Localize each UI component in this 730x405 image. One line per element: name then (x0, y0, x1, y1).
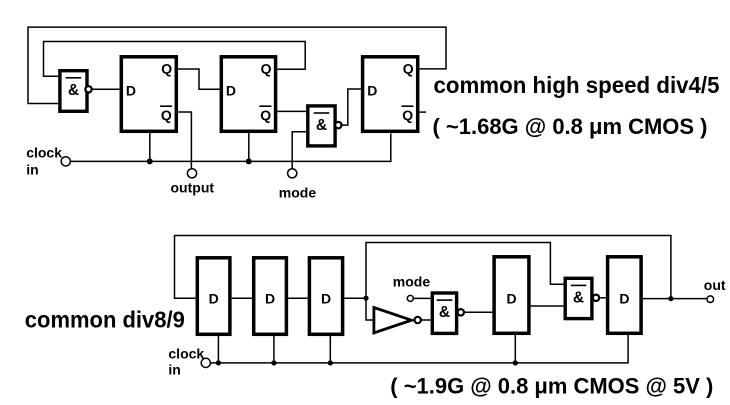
svg-text:in: in (168, 361, 180, 377)
svg-text:D: D (209, 290, 219, 306)
svg-text:Q: Q (402, 107, 413, 123)
svg-text:Q: Q (403, 61, 414, 77)
svg-text:&: & (573, 289, 584, 306)
svg-text:D: D (321, 290, 331, 306)
svg-text:out: out (704, 277, 726, 293)
svg-text:D: D (367, 83, 377, 99)
svg-text:common high speed div4/5: common high speed div4/5 (434, 72, 720, 98)
svg-text:mode: mode (279, 184, 317, 200)
svg-text:D: D (126, 83, 136, 99)
svg-text:&: & (316, 117, 327, 134)
svg-text:output: output (171, 180, 215, 196)
svg-text:in: in (26, 161, 38, 177)
svg-text:clock: clock (26, 144, 62, 160)
svg-text:&: & (439, 304, 450, 321)
svg-text:D: D (619, 290, 629, 306)
svg-text:&: & (68, 82, 79, 99)
svg-text:D: D (265, 290, 275, 306)
svg-text:mode: mode (393, 274, 431, 290)
svg-text:( ~1.9G @ 0.8 μm CMOS @ 5V ): ( ~1.9G @ 0.8 μm CMOS @ 5V ) (390, 374, 713, 399)
svg-text:Q: Q (161, 61, 172, 77)
svg-text:Q: Q (260, 107, 271, 123)
svg-text:D: D (226, 83, 236, 99)
svg-text:( ~1.68G @ 0.8 μm CMOS ): ( ~1.68G @ 0.8 μm CMOS ) (433, 114, 708, 139)
svg-text:Q: Q (161, 107, 172, 123)
svg-text:clock: clock (168, 345, 204, 361)
svg-text:D: D (506, 290, 516, 306)
svg-text:common div8/9: common div8/9 (25, 306, 185, 332)
svg-text:Q: Q (261, 61, 272, 77)
